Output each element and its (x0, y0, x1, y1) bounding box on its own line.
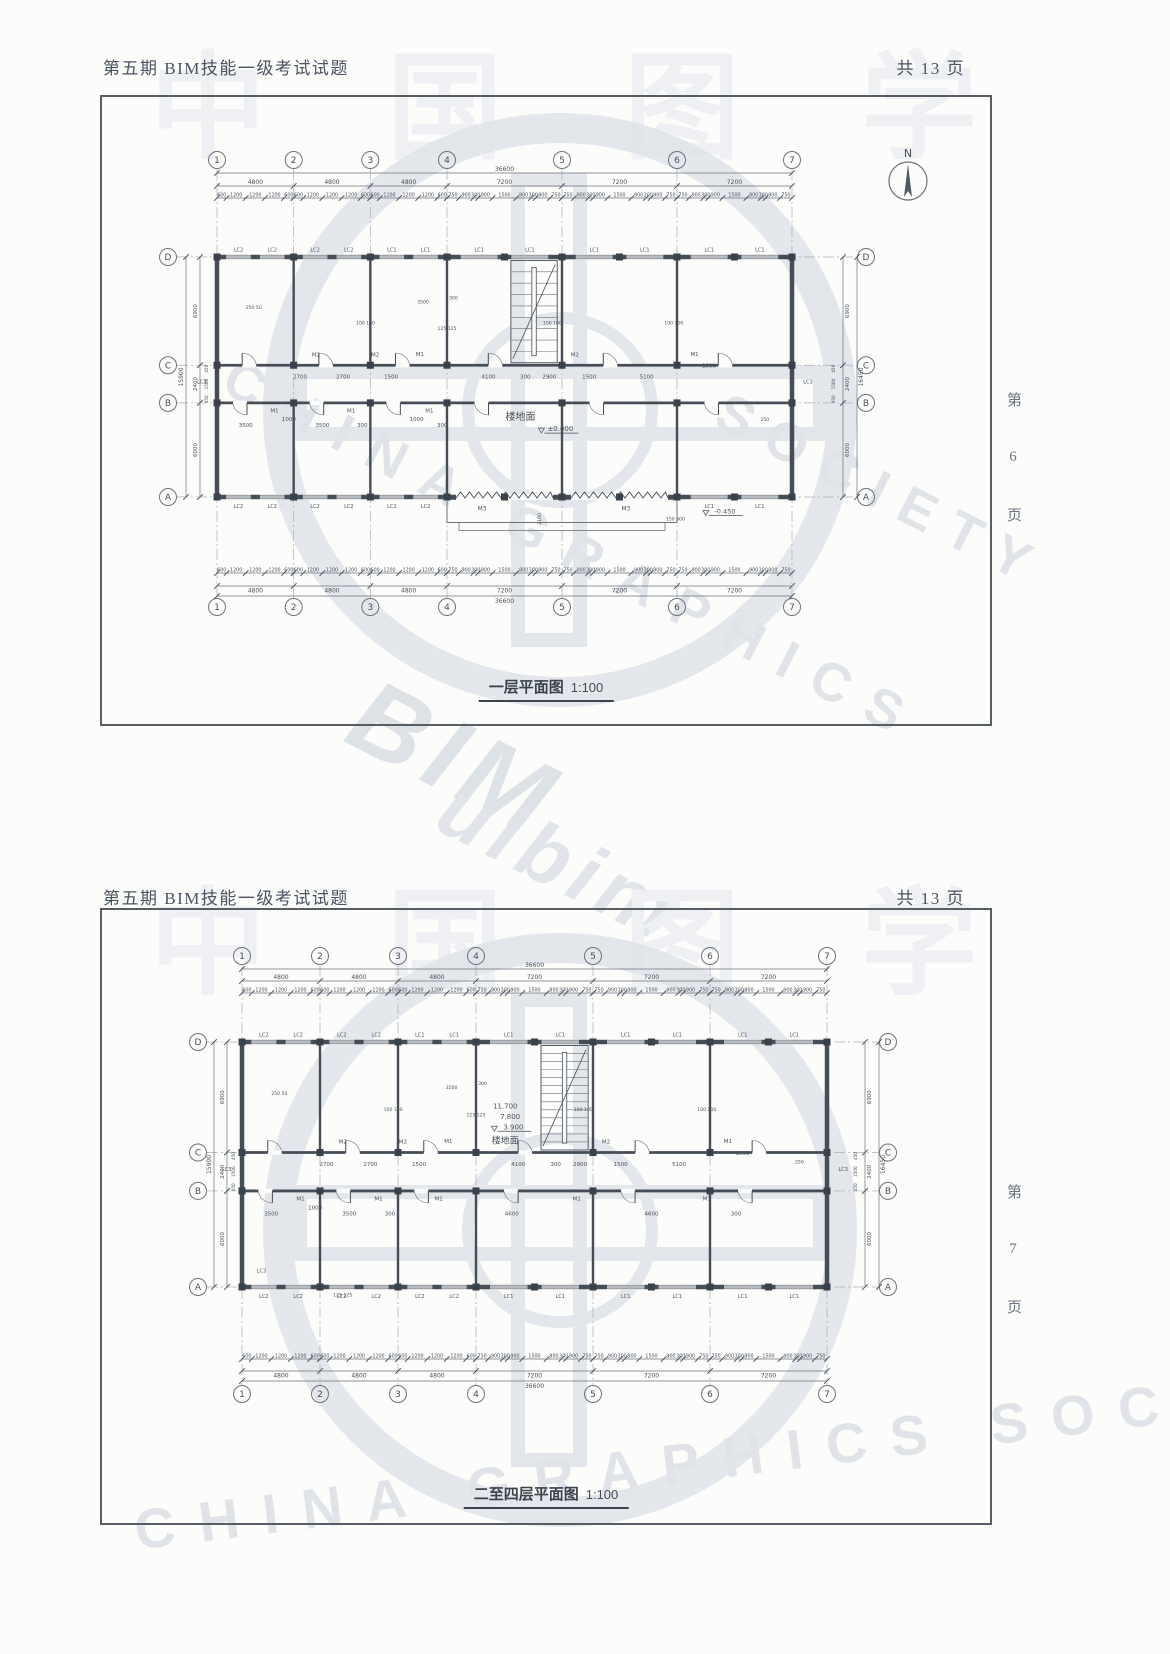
svg-text:600: 600 (371, 568, 380, 574)
svg-text:1200: 1200 (383, 193, 395, 199)
svg-text:D: D (885, 1038, 892, 1048)
svg-text:LC1: LC1 (504, 1033, 513, 1039)
plan-title-2: 二至四层平面图1:100 (464, 1483, 629, 1509)
svg-text:LC1: LC1 (556, 1033, 565, 1039)
svg-text:900: 900 (510, 1354, 519, 1360)
svg-text:750: 750 (448, 193, 457, 199)
svg-text:100 100: 100 100 (543, 320, 562, 326)
svg-text:6000: 6000 (193, 442, 199, 456)
svg-text:LC1: LC1 (556, 1294, 565, 1300)
svg-text:900: 900 (711, 193, 720, 199)
svg-text:600: 600 (361, 193, 370, 199)
svg-text:600: 600 (242, 988, 251, 994)
svg-text:600: 600 (467, 1354, 476, 1360)
svg-text:1200: 1200 (353, 1354, 365, 1360)
svg-text:900: 900 (783, 1354, 792, 1360)
floor-plan-1-drawing: 11223344556677DDCCBBAA366004800480048007… (102, 97, 986, 720)
svg-text:900: 900 (549, 988, 558, 994)
svg-text:楼地面: 楼地面 (492, 1135, 519, 1147)
text-labels: LC2LC2LC2LC2LC2LC2LC2LC2LC1LC1LC2LC2LC1L… (222, 1033, 848, 1301)
svg-text:2700: 2700 (293, 375, 307, 381)
svg-text:1000: 1000 (702, 364, 716, 370)
svg-text:±0.000: ±0.000 (547, 425, 573, 433)
svg-text:4: 4 (473, 1390, 479, 1400)
svg-text:5: 5 (559, 603, 565, 613)
svg-text:B: B (165, 399, 171, 409)
svg-text:100 100: 100 100 (697, 1107, 716, 1113)
svg-text:1500: 1500 (384, 375, 398, 381)
svg-text:M1: M1 (347, 408, 355, 414)
svg-text:750: 750 (478, 988, 487, 994)
svg-text:M1: M1 (425, 408, 433, 414)
svg-text:100 100: 100 100 (384, 1107, 403, 1113)
svg-text:7200: 7200 (527, 1373, 542, 1380)
svg-text:7: 7 (824, 952, 830, 962)
svg-text:7200: 7200 (761, 1373, 776, 1380)
svg-text:750: 750 (582, 988, 591, 994)
svg-text:900: 900 (686, 1354, 695, 1360)
svg-text:125 125: 125 125 (333, 1293, 352, 1299)
svg-text:750: 750 (563, 193, 572, 199)
svg-text:750: 750 (666, 193, 675, 199)
svg-text:1200: 1200 (345, 193, 357, 199)
svg-text:4: 4 (444, 603, 450, 613)
svg-text:900: 900 (744, 988, 753, 994)
plan-title-1: 一层平面图1:100 (479, 676, 614, 702)
svg-text:LC1: LC1 (704, 248, 713, 254)
scanned-exam-page: 中 国 图 学 CHINA GRAPHICS SOCIETY BIM uibim… (0, 0, 1170, 1654)
svg-text:36600: 36600 (495, 166, 514, 173)
svg-text:36600: 36600 (525, 962, 544, 969)
staircase (541, 1046, 588, 1150)
svg-text:300: 300 (449, 295, 458, 301)
svg-text:4800: 4800 (429, 974, 444, 981)
svg-text:1200: 1200 (333, 1354, 345, 1360)
svg-text:LC1: LC1 (621, 1033, 630, 1039)
svg-text:300: 300 (437, 423, 448, 429)
svg-text:LC2: LC2 (421, 504, 430, 510)
svg-text:750: 750 (666, 568, 675, 574)
svg-text:6: 6 (674, 156, 680, 166)
svg-text:750: 750 (712, 1354, 721, 1360)
svg-text:36600: 36600 (495, 598, 514, 605)
axis-grid: 11223344556677DDCCBBAA (160, 152, 875, 616)
svg-text:4800: 4800 (273, 1373, 288, 1380)
svg-text:1500: 1500 (231, 1166, 236, 1177)
svg-text:LC1: LC1 (640, 248, 649, 254)
svg-text:LC1: LC1 (738, 1033, 747, 1039)
svg-text:900: 900 (549, 1354, 558, 1360)
svg-text:LC2: LC2 (267, 248, 276, 254)
text-labels: LC2LC2LC2LC2LC2LC2LC2LC2LC1LC1LC2LC2LC1L… (197, 248, 813, 525)
svg-text:LC2: LC2 (371, 1294, 380, 1300)
svg-text:4800: 4800 (273, 974, 288, 981)
svg-text:LC1: LC1 (755, 504, 764, 510)
svg-text:2700: 2700 (320, 1162, 334, 1168)
svg-text:A: A (165, 493, 172, 503)
svg-text:600: 600 (294, 193, 303, 199)
svg-text:3.900: 3.900 (503, 1123, 523, 1131)
svg-text:6: 6 (674, 603, 680, 613)
svg-text:900: 900 (749, 193, 758, 199)
svg-text:2: 2 (291, 156, 297, 166)
svg-text:2: 2 (317, 1390, 323, 1400)
svg-text:600: 600 (361, 568, 370, 574)
side-page-label-6: 第 6 页 (1003, 392, 1024, 535)
svg-text:900: 900 (538, 568, 547, 574)
svg-text:1000: 1000 (736, 1151, 750, 1157)
staircase (511, 261, 557, 363)
plan-scale-text-2: 1:100 (586, 1487, 619, 1502)
svg-text:900: 900 (596, 193, 605, 199)
svg-text:750: 750 (551, 193, 560, 199)
svg-text:4800: 4800 (248, 588, 263, 595)
svg-text:A: A (885, 1283, 892, 1293)
svg-text:600: 600 (311, 988, 320, 994)
svg-text:7200: 7200 (727, 179, 742, 186)
svg-text:1000: 1000 (308, 1205, 322, 1211)
floor-plan-2-drawing: 11223344556677DDCCBBAA366004800480048007… (102, 910, 986, 1519)
svg-text:7200: 7200 (727, 588, 742, 595)
svg-text:600: 600 (467, 988, 476, 994)
svg-text:2400: 2400 (845, 377, 851, 391)
svg-text:1200: 1200 (268, 193, 280, 199)
svg-text:5: 5 (590, 952, 596, 962)
svg-text:LC2: LC2 (449, 1294, 458, 1300)
svg-text:1200: 1200 (403, 568, 415, 574)
svg-text:450: 450 (231, 1183, 236, 1191)
svg-text:750: 750 (712, 988, 721, 994)
svg-text:3: 3 (395, 952, 401, 962)
svg-text:900: 900 (634, 193, 643, 199)
svg-text:750: 750 (595, 1354, 604, 1360)
svg-text:LC1: LC1 (673, 1294, 682, 1300)
svg-text:4800: 4800 (351, 1373, 366, 1380)
svg-text:1500: 1500 (528, 1354, 540, 1360)
svg-text:150 300: 150 300 (666, 517, 685, 523)
svg-text:6000: 6000 (867, 1231, 873, 1245)
svg-text:600: 600 (284, 568, 293, 574)
svg-text:1200: 1200 (255, 988, 267, 994)
svg-text:3500: 3500 (446, 1085, 458, 1091)
svg-text:900: 900 (686, 988, 695, 994)
svg-text:LC3: LC3 (257, 1269, 266, 1275)
svg-text:6900: 6900 (845, 304, 851, 318)
svg-text:B: B (863, 399, 869, 409)
svg-text:900: 900 (666, 988, 675, 994)
walls (217, 257, 792, 531)
svg-text:600: 600 (242, 1354, 251, 1360)
svg-text:2100: 2100 (537, 513, 543, 525)
svg-text:300: 300 (357, 423, 368, 429)
svg-text:LC2: LC2 (259, 1033, 268, 1039)
svg-text:M1: M1 (703, 1197, 711, 1203)
svg-text:1500: 1500 (728, 568, 740, 574)
svg-text:450: 450 (831, 395, 836, 403)
svg-text:750: 750 (582, 1354, 591, 1360)
svg-text:900: 900 (627, 988, 636, 994)
svg-text:LC2: LC2 (415, 1294, 424, 1300)
plan-title-text: 一层平面图 (489, 679, 564, 696)
svg-text:LC2: LC2 (344, 248, 353, 254)
svg-text:3500: 3500 (239, 423, 253, 429)
svg-text:A: A (195, 1283, 202, 1293)
svg-text:900: 900 (538, 193, 547, 199)
svg-text:16450: 16450 (858, 367, 865, 386)
svg-text:LC1: LC1 (421, 248, 430, 254)
svg-text:LC2: LC2 (259, 1294, 268, 1300)
svg-text:LC1: LC1 (504, 1294, 513, 1300)
svg-text:36600: 36600 (525, 1383, 544, 1390)
svg-text:900: 900 (596, 568, 605, 574)
svg-text:300: 300 (520, 375, 531, 381)
svg-text:6900: 6900 (220, 1090, 226, 1104)
svg-text:750: 750 (781, 568, 790, 574)
svg-text:1500: 1500 (831, 378, 836, 389)
svg-text:LC1: LC1 (790, 1294, 799, 1300)
svg-text:1500: 1500 (762, 988, 774, 994)
svg-text:1500: 1500 (613, 568, 625, 574)
svg-text:7200: 7200 (644, 974, 659, 981)
svg-text:900: 900 (510, 988, 519, 994)
svg-text:900: 900 (749, 568, 758, 574)
svg-text:4800: 4800 (401, 179, 416, 186)
svg-text:450: 450 (853, 1183, 858, 1191)
svg-text:M2: M2 (339, 1140, 347, 1146)
svg-text:7: 7 (789, 156, 795, 166)
svg-text:750: 750 (699, 988, 708, 994)
svg-text:750: 750 (816, 1354, 825, 1360)
svg-text:LC1: LC1 (474, 248, 483, 254)
svg-text:3: 3 (367, 156, 373, 166)
svg-text:3: 3 (367, 603, 373, 613)
svg-text:4: 4 (444, 156, 450, 166)
svg-text:900: 900 (481, 193, 490, 199)
svg-text:1500: 1500 (528, 988, 540, 994)
svg-text:D: D (863, 253, 870, 263)
svg-text:450: 450 (831, 364, 836, 372)
svg-text:900: 900 (653, 568, 662, 574)
svg-text:300: 300 (550, 1162, 561, 1168)
svg-text:1200: 1200 (431, 1354, 443, 1360)
window-symbols (226, 254, 778, 499)
svg-text:LC1: LC1 (589, 248, 598, 254)
svg-text:LC1: LC1 (755, 248, 764, 254)
svg-text:250 50: 250 50 (271, 1091, 287, 1097)
svg-text:450: 450 (204, 395, 209, 403)
svg-text:1200: 1200 (326, 193, 338, 199)
svg-text:1200: 1200 (307, 193, 319, 199)
svg-text:450: 450 (853, 1152, 858, 1160)
svg-text:LC1: LC1 (673, 1033, 682, 1039)
svg-text:1200: 1200 (450, 988, 462, 994)
svg-text:M2: M2 (399, 1140, 407, 1146)
svg-text:LC3: LC3 (803, 379, 812, 385)
svg-text:LC1: LC1 (704, 504, 713, 510)
svg-text:M2: M2 (571, 353, 579, 359)
svg-text:6: 6 (707, 952, 713, 962)
svg-text:LC2: LC2 (293, 1294, 302, 1300)
svg-text:M1: M1 (724, 1139, 732, 1145)
svg-text:600: 600 (438, 568, 447, 574)
svg-text:LC2: LC2 (234, 504, 243, 510)
svg-text:LC2: LC2 (293, 1033, 302, 1039)
svg-text:1500: 1500 (728, 193, 740, 199)
svg-text:900: 900 (577, 568, 586, 574)
header-title: 第五期 BIM技能一级考试试题 (103, 54, 349, 79)
svg-text:4800: 4800 (401, 588, 416, 595)
svg-text:1200: 1200 (422, 193, 434, 199)
svg-text:6000: 6000 (845, 442, 851, 456)
svg-text:7200: 7200 (761, 974, 776, 981)
svg-text:900: 900 (744, 1354, 753, 1360)
svg-text:M1: M1 (690, 352, 698, 358)
svg-text:900: 900 (569, 988, 578, 994)
svg-text:100 100: 100 100 (356, 320, 375, 326)
svg-text:LC2: LC2 (310, 248, 319, 254)
svg-text:900: 900 (491, 988, 500, 994)
svg-text:900: 900 (491, 1354, 500, 1360)
svg-text:LC1: LC1 (790, 1033, 799, 1039)
svg-text:LC1: LC1 (525, 248, 534, 254)
svg-text:1200: 1200 (383, 568, 395, 574)
svg-text:M1: M1 (374, 1197, 382, 1203)
svg-text:1200: 1200 (450, 1354, 462, 1360)
svg-text:1200: 1200 (411, 1354, 423, 1360)
dimension-lines: 3660048004800480072007200720060012001200… (178, 166, 865, 605)
svg-text:7: 7 (824, 1390, 830, 1400)
svg-text:750: 750 (551, 568, 560, 574)
svg-text:M1: M1 (444, 1139, 452, 1145)
svg-text:900: 900 (692, 568, 701, 574)
svg-text:3: 3 (395, 1390, 401, 1400)
svg-text:1200: 1200 (326, 568, 338, 574)
svg-text:M3: M3 (478, 505, 487, 512)
svg-text:1500: 1500 (613, 193, 625, 199)
svg-text:LC2: LC2 (387, 504, 396, 510)
svg-text:750: 750 (448, 568, 457, 574)
svg-text:600: 600 (217, 568, 226, 574)
svg-text:7.800: 7.800 (500, 1113, 520, 1121)
svg-text:900: 900 (768, 193, 777, 199)
svg-text:250: 250 (760, 417, 769, 423)
svg-text:M1: M1 (296, 1197, 304, 1203)
header-title-2: 第五期 BIM技能一级考试试题 (103, 884, 349, 909)
svg-text:600: 600 (294, 568, 303, 574)
svg-text:7: 7 (789, 603, 795, 613)
svg-text:900: 900 (569, 1354, 578, 1360)
svg-text:1500: 1500 (762, 1354, 774, 1360)
exam-sheet-frame-1: 11223344556677DDCCBBAA366004800480048007… (100, 95, 992, 726)
svg-text:5100: 5100 (672, 1162, 686, 1168)
svg-text:M1: M1 (573, 1197, 581, 1203)
svg-text:900: 900 (462, 568, 471, 574)
svg-text:2: 2 (317, 952, 323, 962)
svg-text:600: 600 (217, 193, 226, 199)
svg-text:A: A (863, 493, 870, 503)
svg-text:900: 900 (653, 193, 662, 199)
svg-text:750: 750 (678, 568, 687, 574)
svg-text:M1: M1 (416, 352, 424, 358)
svg-text:900: 900 (577, 193, 586, 199)
svg-text:600: 600 (389, 988, 398, 994)
svg-text:4100: 4100 (482, 375, 496, 381)
svg-text:300: 300 (731, 1212, 742, 1218)
svg-text:600: 600 (389, 1354, 398, 1360)
svg-text:2700: 2700 (363, 1162, 377, 1168)
svg-text:900: 900 (608, 988, 617, 994)
plan-title-text-2: 二至四层平面图 (474, 1486, 579, 1503)
svg-text:4800: 4800 (324, 588, 339, 595)
svg-text:7200: 7200 (612, 588, 627, 595)
svg-text:1200: 1200 (268, 568, 280, 574)
svg-text:LC3: LC3 (197, 379, 206, 385)
svg-text:6900: 6900 (193, 304, 199, 318)
axis-grid: 11223344556677DDCCBBAA (190, 948, 897, 1403)
svg-text:1200: 1200 (353, 988, 365, 994)
svg-text:M1: M1 (270, 408, 278, 414)
svg-text:2700: 2700 (336, 375, 350, 381)
svg-text:900: 900 (462, 193, 471, 199)
svg-text:LC1: LC1 (449, 1033, 458, 1039)
svg-text:3500: 3500 (342, 1212, 356, 1218)
svg-text:7200: 7200 (497, 179, 512, 186)
svg-text:LC1: LC1 (738, 1294, 747, 1300)
svg-text:4: 4 (473, 952, 479, 962)
window-symbols (251, 1039, 813, 1289)
svg-text:600: 600 (284, 193, 293, 199)
svg-text:LC3: LC3 (839, 1167, 848, 1173)
svg-text:1200: 1200 (345, 568, 357, 574)
svg-text:LC2: LC2 (337, 1033, 346, 1039)
svg-text:LC1: LC1 (387, 248, 396, 254)
svg-text:125 125: 125 125 (438, 326, 457, 332)
svg-text:900: 900 (725, 988, 734, 994)
svg-text:750: 750 (678, 193, 687, 199)
svg-text:M2: M2 (312, 353, 320, 359)
svg-text:900: 900 (783, 988, 792, 994)
svg-text:600: 600 (320, 988, 329, 994)
svg-text:250 50: 250 50 (246, 305, 262, 311)
svg-text:1000: 1000 (282, 417, 296, 423)
plan-scale-text: 1:100 (571, 680, 604, 695)
svg-text:5100: 5100 (640, 375, 654, 381)
svg-text:M1: M1 (435, 1197, 443, 1203)
svg-text:900: 900 (608, 1354, 617, 1360)
svg-text:7200: 7200 (644, 1373, 659, 1380)
svg-text:1200: 1200 (411, 988, 423, 994)
svg-text:300: 300 (478, 1081, 487, 1087)
svg-text:6900: 6900 (867, 1090, 873, 1104)
svg-text:4800: 4800 (248, 179, 263, 186)
svg-text:1500: 1500 (582, 375, 596, 381)
svg-text:1: 1 (239, 1390, 245, 1400)
svg-text:1200: 1200 (255, 1354, 267, 1360)
svg-text:3500: 3500 (417, 299, 429, 305)
svg-text:1200: 1200 (403, 193, 415, 199)
svg-text:1: 1 (239, 952, 245, 962)
svg-text:6000: 6000 (220, 1231, 226, 1245)
svg-text:1200: 1200 (294, 988, 306, 994)
svg-text:900: 900 (803, 1354, 812, 1360)
svg-text:LC1: LC1 (415, 1033, 424, 1039)
svg-text:LC3: LC3 (222, 1167, 231, 1173)
svg-text:750: 750 (595, 988, 604, 994)
svg-text:900: 900 (519, 568, 528, 574)
svg-text:1200: 1200 (294, 1354, 306, 1360)
svg-text:450: 450 (231, 1152, 236, 1160)
svg-text:4800: 4800 (351, 974, 366, 981)
